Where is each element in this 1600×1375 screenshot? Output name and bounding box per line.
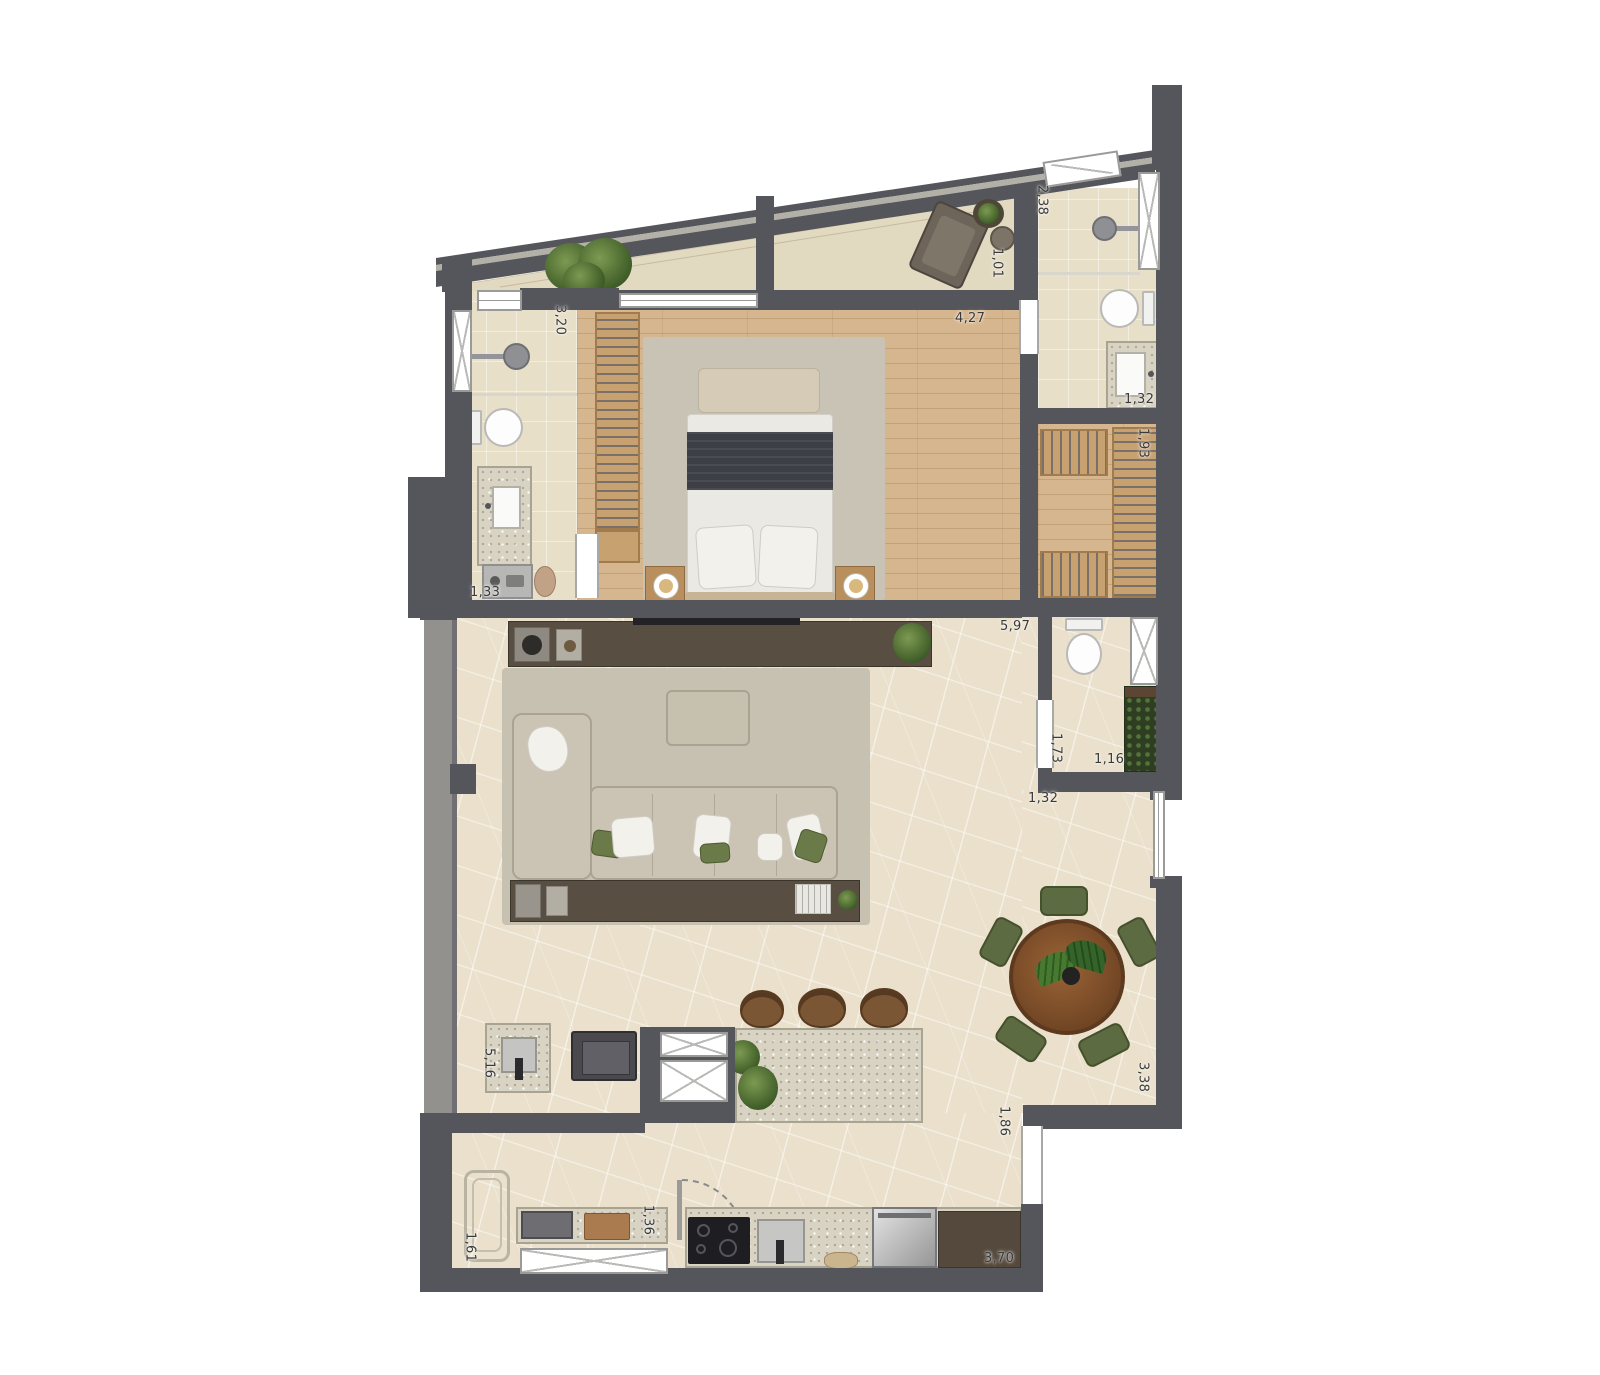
closet-rack: [1040, 429, 1108, 476]
window: [520, 1248, 668, 1274]
dimension-label: 1,16: [1094, 753, 1124, 767]
lounge-chair-cushion: [921, 214, 977, 277]
wall: [408, 600, 1022, 618]
wardrobe-rack: [595, 312, 640, 530]
dining-chair chair: [1040, 886, 1088, 916]
console-frame: [546, 886, 568, 916]
wall: [1156, 884, 1182, 1109]
oven: [571, 1031, 637, 1081]
lamp-icon: [844, 574, 868, 598]
island-plant-icon: [738, 1066, 778, 1110]
console-frame: [515, 884, 541, 918]
floor-plan: 3,20 2,38 1,01 4,27 1,32 1,93 1,33 5,97 …: [0, 0, 1600, 1375]
sofa-cushion: [610, 815, 655, 859]
dimension-label: 4,27: [955, 312, 985, 326]
dishwasher: [872, 1207, 937, 1268]
shower-head-icon: [503, 343, 530, 370]
toilet: [1064, 618, 1104, 678]
potted-plant-icon: [973, 199, 1004, 228]
dimension-label: 3,20: [553, 305, 567, 335]
faucet-icon: [485, 503, 491, 509]
shower-glass-partition: [1038, 272, 1140, 275]
bowl-icon: [1062, 967, 1080, 985]
door-opening: [1021, 1126, 1043, 1204]
lamp-icon: [654, 574, 678, 598]
dimension-label: 1,86: [997, 1106, 1011, 1136]
dimension-label: 5,97: [1000, 620, 1030, 634]
dimension-label: 5,16: [482, 1048, 496, 1078]
wall: [1021, 1203, 1043, 1273]
nightstand: [835, 566, 875, 604]
wall: [1038, 408, 1158, 424]
closet-rack: [1112, 427, 1158, 598]
wall: [420, 1268, 1043, 1292]
toilet: [1098, 288, 1156, 330]
door-leaf: [677, 1180, 682, 1240]
dimension-label: 1,32: [1124, 393, 1154, 407]
sofa-cushion: [757, 833, 783, 861]
sideboard-plant-icon: [893, 623, 931, 663]
window-frame: [452, 618, 457, 1113]
dimension-label: 1,61: [463, 1232, 477, 1262]
console-plant-icon: [838, 890, 858, 910]
door-opening: [1019, 300, 1039, 354]
dimension-label: 1,73: [1049, 733, 1063, 763]
bar-stool: [740, 990, 784, 1028]
wall: [756, 196, 774, 290]
dimension-label: 1,32: [1028, 792, 1058, 806]
cooktop: [688, 1217, 750, 1264]
wall: [1020, 598, 1158, 617]
service-sink: [521, 1211, 573, 1239]
bar-stool: [798, 988, 846, 1028]
door-opening: [575, 534, 599, 598]
faucet-icon: [1148, 371, 1154, 377]
faucet-icon: [515, 1058, 523, 1080]
faucet-icon: [776, 1240, 784, 1264]
shower-head-icon: [1092, 216, 1117, 241]
vanity-sink: [1115, 352, 1146, 397]
tv-icon: [633, 618, 800, 625]
dimension-label: 1,33: [470, 586, 500, 600]
dimension-label: 3,70: [984, 1252, 1014, 1266]
decor-tray: [556, 629, 582, 661]
bed-blanket: [687, 432, 833, 490]
sliding-door: [619, 293, 758, 308]
closet-rack: [1040, 551, 1108, 598]
wall: [420, 1113, 452, 1270]
vertical-garden: [1124, 686, 1158, 772]
bar-stool: [860, 988, 908, 1028]
wall: [1152, 85, 1182, 170]
dimension-label: 3,38: [1136, 1062, 1150, 1092]
toilet: [469, 406, 525, 449]
shaft-window: [660, 1060, 728, 1102]
wall: [756, 290, 1022, 310]
bed-bench: [698, 368, 820, 413]
bed-pillow: [695, 524, 757, 590]
console-books: [795, 884, 831, 914]
wall: [450, 764, 476, 794]
cutting-board: [584, 1213, 630, 1240]
dimension-label: 1,93: [1136, 428, 1150, 458]
dining-table: [1009, 919, 1125, 1035]
dimension-label: 1,36: [641, 1205, 655, 1235]
shower-glass-partition: [470, 393, 577, 396]
wardrobe-shelf: [595, 530, 640, 563]
sofa-cushion: [699, 842, 730, 864]
nightstand: [645, 566, 685, 604]
shaft-window: [452, 310, 472, 392]
groceries: [824, 1252, 858, 1269]
coffee-table: [666, 690, 750, 746]
window: [1130, 617, 1158, 685]
window: [477, 290, 522, 311]
wall: [1038, 772, 1182, 792]
wall: [420, 1113, 645, 1133]
wall: [1023, 1105, 1182, 1129]
record-player-icon: [514, 627, 550, 662]
dimension-label: 2,38: [1035, 185, 1049, 215]
wall: [1156, 613, 1182, 793]
wall: [520, 288, 619, 310]
louver-panel: [1138, 172, 1160, 270]
balcony-slab: [424, 618, 452, 1113]
wall: [442, 258, 472, 292]
glass-panel: [1153, 791, 1165, 879]
wall: [408, 477, 448, 605]
shaft-window: [660, 1032, 728, 1057]
laundry-basket: [534, 566, 556, 597]
bed-pillow: [757, 525, 818, 590]
dimension-label: 1,01: [990, 248, 1004, 278]
vanity-sink: [492, 486, 521, 529]
